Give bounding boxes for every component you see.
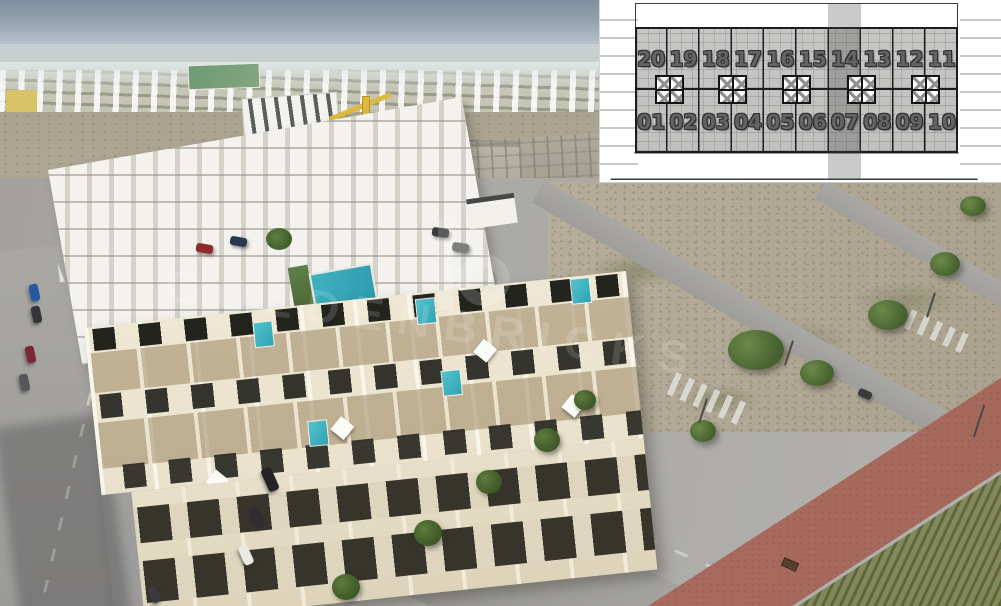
street-tree <box>414 520 442 546</box>
street-tree <box>476 470 502 494</box>
street-tree <box>574 390 596 410</box>
plan-road-hatch-left <box>600 3 638 179</box>
goldenbricks-logo <box>438 220 534 310</box>
site-plan-inset: 20 19 18 17 16 15 14 13 12 11 01 02 03 0… <box>599 0 1001 183</box>
street-tree <box>534 428 560 452</box>
tree <box>800 360 834 386</box>
stairwell-box <box>655 75 684 104</box>
palm-tree <box>266 228 292 250</box>
plan-road-hatch-right <box>960 3 1001 179</box>
plunge-pool <box>307 419 330 447</box>
stairwell-box <box>718 75 747 104</box>
plunge-pool <box>570 277 593 305</box>
tree <box>690 420 716 442</box>
stairwell-box <box>782 75 811 104</box>
plunge-pool <box>440 369 463 397</box>
sports-field <box>188 63 261 90</box>
street-tree <box>332 574 360 600</box>
plan-terrace-strip-top <box>635 3 958 28</box>
plan-terrace-strip-bottom <box>610 152 978 180</box>
tree <box>960 196 986 216</box>
stairwell-box <box>911 75 940 104</box>
stairwell-box <box>847 75 876 104</box>
aerial-photo: GOLDENBRICKS 20 19 18 17 16 15 14 13 12 … <box>0 0 1001 606</box>
tree <box>868 300 908 330</box>
tree <box>930 252 960 276</box>
logo-bowl <box>458 254 510 306</box>
